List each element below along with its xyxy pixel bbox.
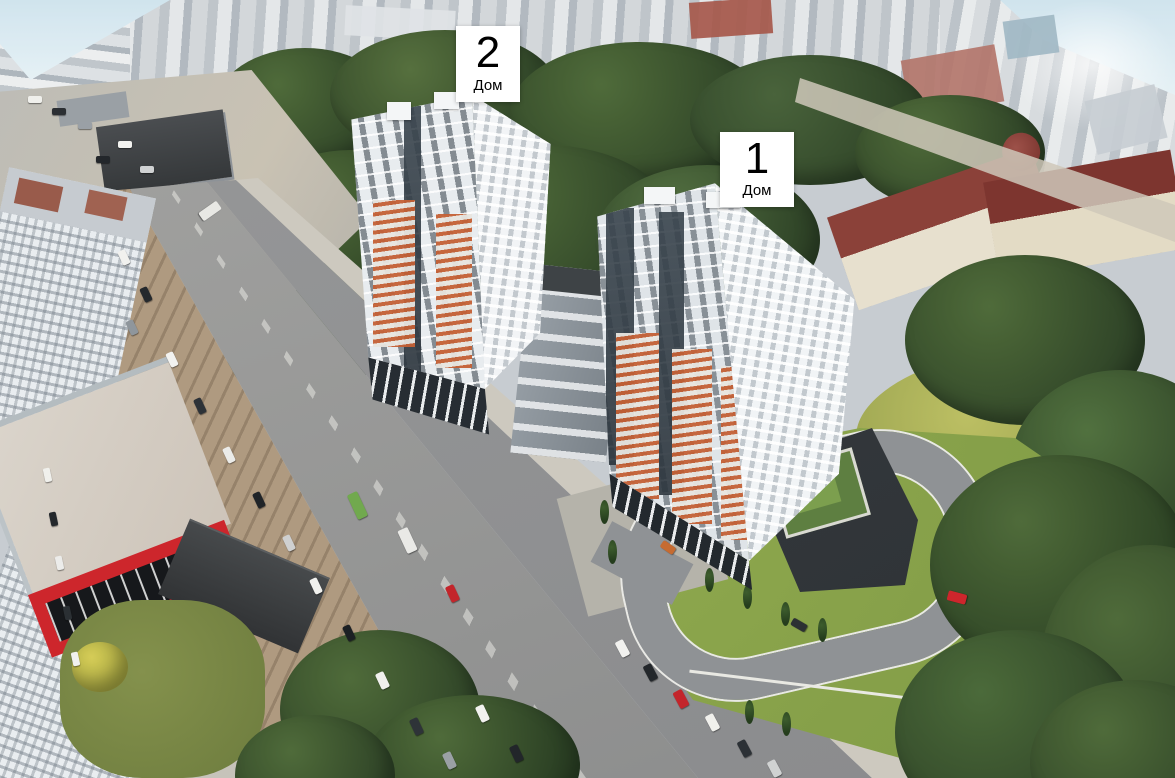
tower-2-orange-balconies [373,200,415,347]
car [28,96,42,103]
tower-1-roof-structure [644,187,675,204]
tower-2-orange-balconies [436,214,472,368]
cypress-tree [745,700,754,724]
residential-tower-1 [563,175,873,590]
house-2-caption: Дом [474,77,503,94]
residential-tower-2 [345,88,557,438]
label-house-1: 1 Дом [720,132,794,207]
cypress-tree [781,602,790,626]
cypress-tree [818,618,827,642]
yellow-tree [72,642,128,692]
label-house-2: 2 Дом [456,26,520,102]
aerial-photo: 2 Дом 1 Дом [0,0,1175,778]
city-building [689,0,773,39]
car [140,166,154,173]
house-1-caption: Дом [743,182,772,199]
tower-2-roof-structure [387,102,410,120]
car [78,122,92,129]
house-2-number: 2 [476,31,500,75]
car [52,108,66,115]
car [118,141,132,148]
tower-1-orange-balconies [616,333,659,499]
car [96,156,110,163]
cypress-tree [782,712,791,736]
city-building [1003,15,1060,60]
house-1-number: 1 [745,137,769,181]
tower-1-orange-balconies [672,349,712,523]
